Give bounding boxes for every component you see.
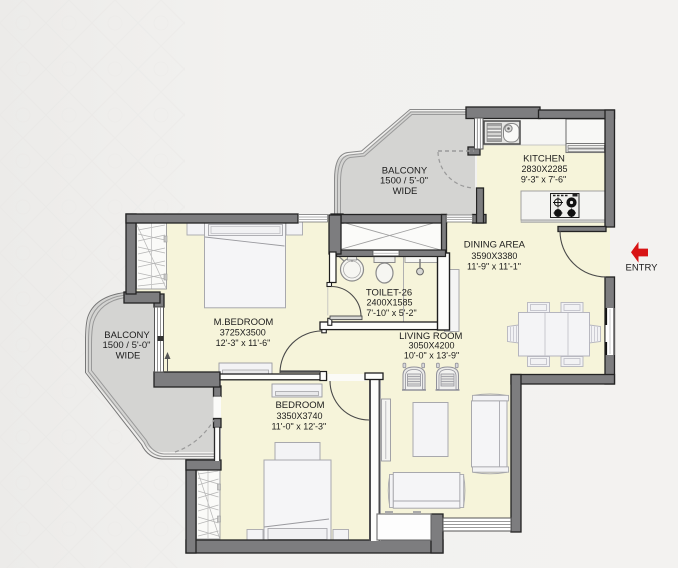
svg-text:2830X2285: 2830X2285	[521, 164, 567, 174]
svg-text:12'-3" x 11'-6": 12'-3" x 11'-6"	[216, 338, 271, 348]
svg-text:10'-0" x 13'-9": 10'-0" x 13'-9"	[404, 351, 459, 361]
svg-text:3050X4200: 3050X4200	[408, 340, 454, 350]
svg-text:DINING AREA: DINING AREA	[464, 240, 526, 251]
svg-text:M.BEDROOM: M.BEDROOM	[214, 317, 274, 328]
svg-text:1500 / 5'-0": 1500 / 5'-0"	[103, 340, 151, 351]
svg-text:2400X1585: 2400X1585	[366, 297, 412, 307]
svg-text:1500 / 5'-0": 1500 / 5'-0"	[380, 176, 428, 187]
svg-text:9'-3" x 7'-6": 9'-3" x 7'-6"	[521, 175, 566, 185]
svg-text:11'-9" x 11'-1": 11'-9" x 11'-1"	[467, 262, 521, 272]
svg-text:11'-0" x 12'-3": 11'-0" x 12'-3"	[271, 422, 326, 432]
svg-text:7'-10" x 5'-2": 7'-10" x 5'-2"	[366, 308, 416, 318]
svg-text:ENTRY: ENTRY	[625, 262, 658, 273]
svg-text:3350X3740: 3350X3740	[276, 411, 322, 421]
svg-text:3725X3500: 3725X3500	[220, 328, 266, 338]
svg-text:WIDE: WIDE	[393, 186, 418, 197]
svg-text:BEDROOM: BEDROOM	[275, 400, 324, 411]
svg-text:KITCHEN: KITCHEN	[523, 154, 565, 165]
svg-text:3590X3380: 3590X3380	[471, 251, 517, 261]
svg-text:WIDE: WIDE	[116, 350, 141, 361]
